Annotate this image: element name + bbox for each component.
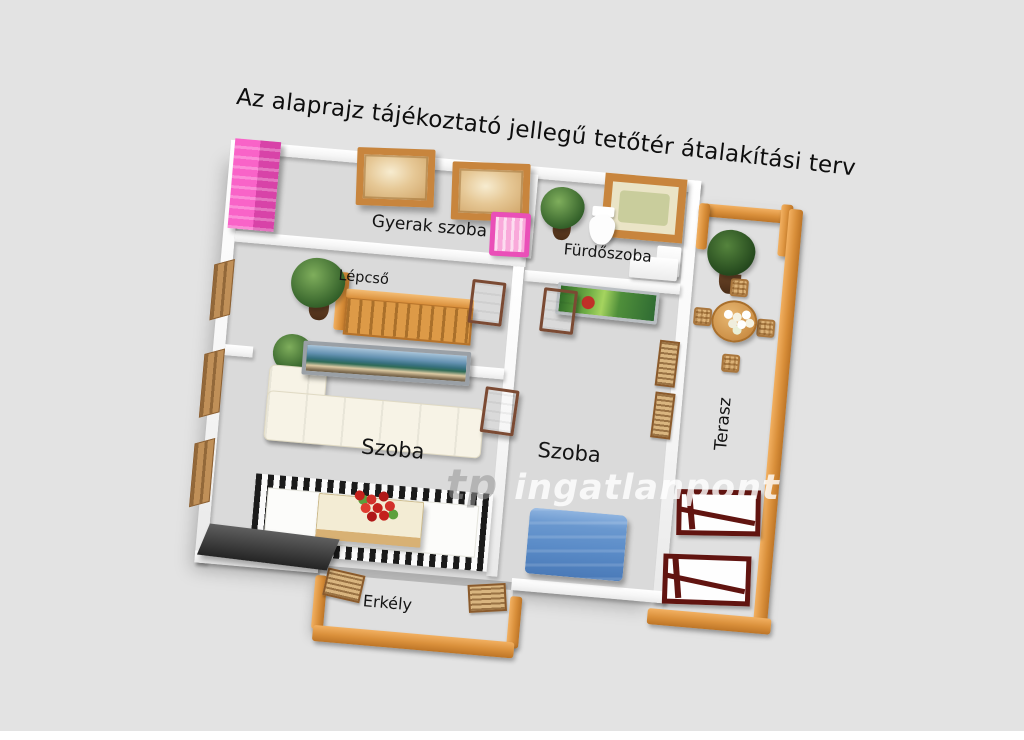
wall-livingroom-north-a: [224, 344, 253, 357]
floorplan-scene: Az alaprajz tájékoztató jellegű tetőtér …: [0, 0, 1024, 740]
skylight-window: [356, 147, 436, 208]
floorplan-3d-render: Gyerak szoba Fürdőszoba Lépcső Szoba: [166, 130, 819, 681]
lounge-chair: [662, 553, 752, 606]
watermark-text: ingatlanpont: [514, 468, 780, 508]
patio-chair: [756, 318, 776, 338]
bottom-edge-strip: [0, 731, 1024, 740]
bathtub-basin: [618, 190, 671, 226]
patio-chair: [693, 307, 713, 327]
interior-door: [539, 287, 578, 335]
interior-door: [467, 279, 506, 327]
white-flower-bouquet: [724, 310, 734, 320]
pink-bunk-bed: [228, 138, 282, 232]
patio-chair: [730, 278, 750, 298]
balcony-shutter: [468, 583, 507, 613]
interior-door: [480, 386, 520, 436]
blue-double-bed: [525, 507, 628, 581]
watermark: tpingatlanpont: [446, 460, 780, 509]
watermark-logo: tp: [446, 460, 498, 509]
